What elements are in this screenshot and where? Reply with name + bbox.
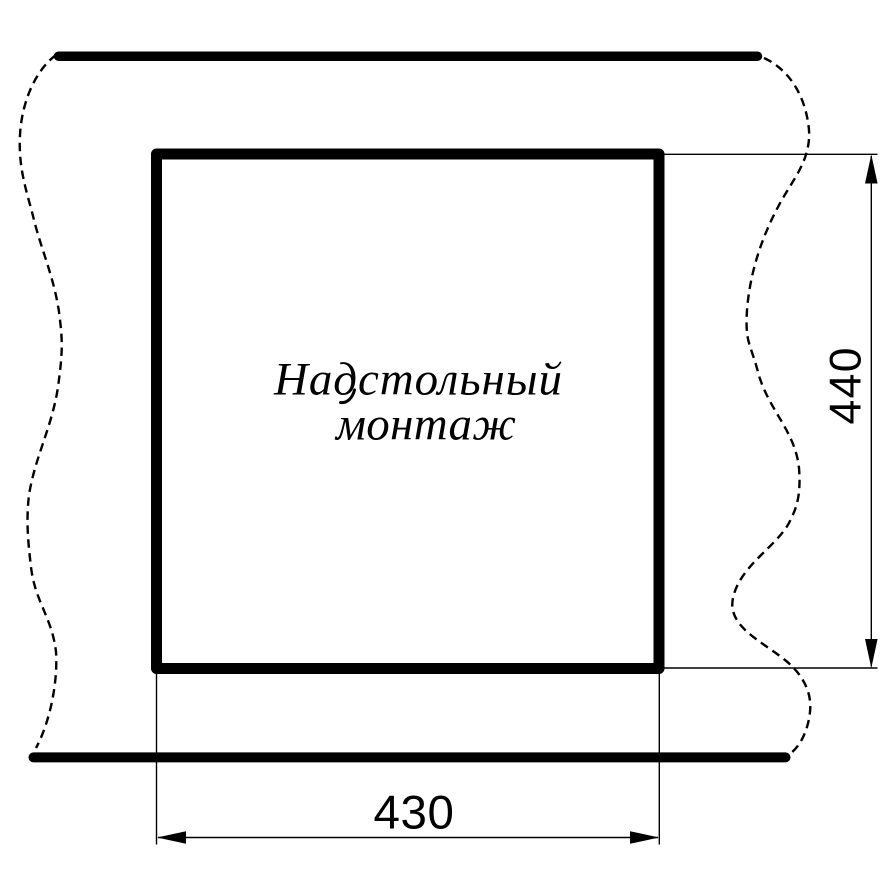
svg-text:440: 440	[822, 348, 871, 425]
svg-text:монтаж: монтаж	[334, 398, 516, 450]
svg-text:430: 430	[374, 786, 454, 839]
